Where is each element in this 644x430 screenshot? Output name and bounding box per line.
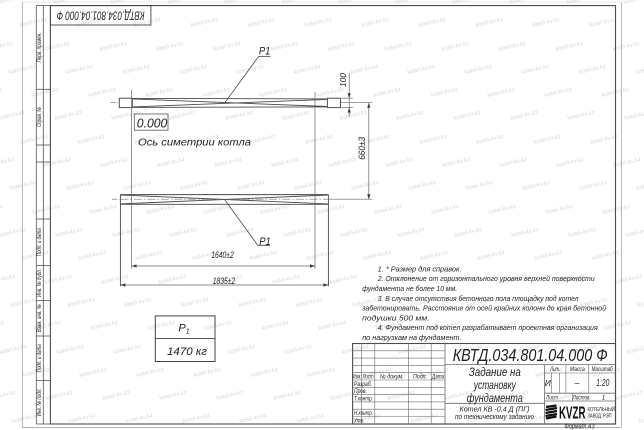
svg-text:1:20: 1:20 [596, 378, 609, 389]
svg-text:Перв. примен.: Перв. примен. [37, 33, 43, 63]
svg-text:ЗАВОД, РЭП: ЗАВОД, РЭП [588, 413, 612, 419]
svg-text:Лит.: Лит. [550, 366, 561, 373]
svg-text:Разраб.: Разраб. [354, 381, 372, 388]
svg-text:KVZR: KVZR [559, 402, 586, 422]
svg-text:100: 100 [339, 72, 348, 87]
svg-text:Формат А3: Формат А3 [565, 424, 595, 430]
svg-text:КВТД.034.801.04.000 Ф: КВТД.034.801.04.000 Ф [453, 345, 608, 365]
svg-text:Изм.: Изм. [353, 373, 362, 380]
svg-text:Подп.: Подп. [413, 373, 427, 380]
svg-text:И: И [545, 378, 552, 388]
svg-text:фундамента: фундамента [467, 393, 523, 405]
svg-text:1. * Размер для справок.: 1. * Размер для справок. [378, 264, 462, 273]
svg-text:1835±2: 1835±2 [213, 276, 236, 286]
svg-text:0.000: 0.000 [137, 116, 168, 131]
svg-text:Т.контр.: Т.контр. [354, 396, 373, 403]
svg-text:№ докум.: № докум. [380, 373, 404, 380]
svg-text:Справ. №: Справ. № [36, 107, 43, 127]
svg-text:фундамента не более 10 мм.: фундамента не более 10 мм. [362, 284, 457, 293]
svg-text:по нагрузкам на фундамент.: по нагрузкам на фундамент. [362, 333, 461, 342]
svg-text:Ось симетрии котла: Ось симетрии котла [138, 136, 251, 148]
svg-text:КОТЕЛЬНЫЙ: КОТЕЛЬНЫЙ [588, 405, 616, 413]
svg-text:2. Отклонение от горизонтальн: 2. Отклонение от горизонтального уровня … [377, 274, 595, 283]
svg-text:КВТД.034.801.04.000 Ф: КВТД.034.801.04.000 Ф [57, 8, 145, 20]
svg-text:Инв. № подл.: Инв. № подл. [36, 388, 43, 416]
svg-text:Утв.: Утв. [353, 417, 364, 424]
svg-text:забетонировать. Расстояние от: забетонировать. Расстояние от осей крайн… [361, 304, 606, 313]
svg-text:по техническому заданию: по техническому заданию [455, 412, 534, 421]
svg-text:3. В случае отсутствия бетонн: 3. В случае отсутствия бетонного пола пл… [378, 294, 579, 303]
svg-text:4. Фундамент под котел разраб: 4. Фундамент под котел разрабатывает про… [378, 323, 598, 332]
svg-text:Дата: Дата [431, 373, 444, 380]
svg-text:Инв. № дубл.: Инв. № дубл. [36, 269, 43, 297]
svg-text:Масштаб: Масштаб [592, 366, 613, 373]
svg-text:Пров.: Пров. [354, 388, 367, 395]
svg-text:Р1: Р1 [259, 46, 271, 58]
svg-text:Р1: Р1 [259, 236, 271, 248]
svg-text:–: – [574, 378, 580, 388]
svg-text:660±3: 660±3 [357, 137, 367, 160]
svg-text:Масса: Масса [570, 366, 585, 373]
svg-text:Взам. инв. №: Взам. инв. № [36, 304, 43, 332]
svg-text:Лист: Лист [362, 373, 374, 380]
svg-text:1: 1 [602, 394, 605, 401]
svg-text:1470 кг: 1470 кг [167, 346, 208, 358]
svg-text:Подп. и дата: Подп. и дата [37, 228, 43, 256]
svg-text:Лист: Лист [545, 394, 558, 401]
svg-text:1640±2: 1640±2 [211, 250, 234, 260]
svg-text:установку: установку [473, 380, 517, 392]
svg-text:Листов: Листов [572, 394, 590, 401]
svg-text:подушки 500 мм.: подушки 500 мм. [362, 313, 429, 322]
svg-text:Подп. и дата: Подп. и дата [37, 344, 43, 372]
svg-text:Задание на: Задание на [469, 367, 521, 379]
svg-text:Н.контр.: Н.контр. [354, 410, 373, 417]
